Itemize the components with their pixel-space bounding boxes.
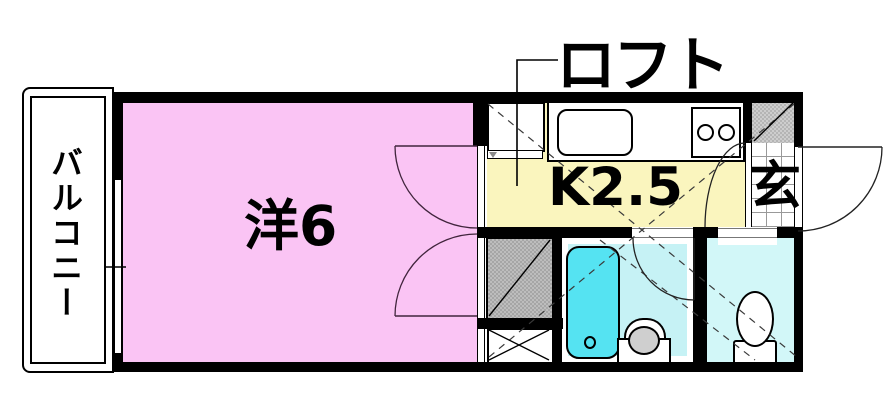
wall (473, 103, 487, 146)
wall (477, 318, 563, 329)
wall (745, 98, 752, 143)
bathtub-drain-icon (584, 336, 596, 349)
loft-label: ロフト (556, 36, 727, 96)
wall (794, 227, 803, 372)
wall (794, 92, 803, 147)
kitchen-sink (557, 109, 633, 156)
wall (777, 227, 795, 238)
stove-burner-icon (718, 124, 735, 141)
balcony-window (113, 180, 123, 353)
wall (113, 92, 123, 182)
wall (693, 227, 718, 238)
wall (113, 362, 803, 372)
wall (113, 351, 123, 372)
door-opening-room (477, 146, 485, 362)
wall (477, 227, 632, 238)
toilet-step (718, 238, 777, 245)
edge-marker-icon (489, 152, 497, 158)
door-opening-toilet (718, 228, 777, 238)
shoe-cabinet (752, 98, 798, 143)
wall (693, 238, 707, 362)
entrance-label: 玄 (749, 161, 801, 213)
balcony-label: バルコニー (36, 112, 94, 354)
toilet-bowl (736, 291, 774, 347)
storage-closet (486, 237, 554, 321)
front-door-swing-arc (798, 147, 882, 231)
door-opening-bathroom (632, 228, 693, 238)
stove-burner-icon (697, 124, 714, 141)
kitchen-label: K2.5 (548, 161, 683, 214)
refrigerator-space (487, 102, 545, 152)
room-label: 洋6 (244, 199, 337, 254)
washbasin-bowl (628, 326, 660, 355)
floor-plan: ロフト 洋6 K2.5 玄 バルコニー (0, 0, 896, 409)
laundry-machine-space (487, 328, 554, 365)
wall (552, 238, 562, 362)
